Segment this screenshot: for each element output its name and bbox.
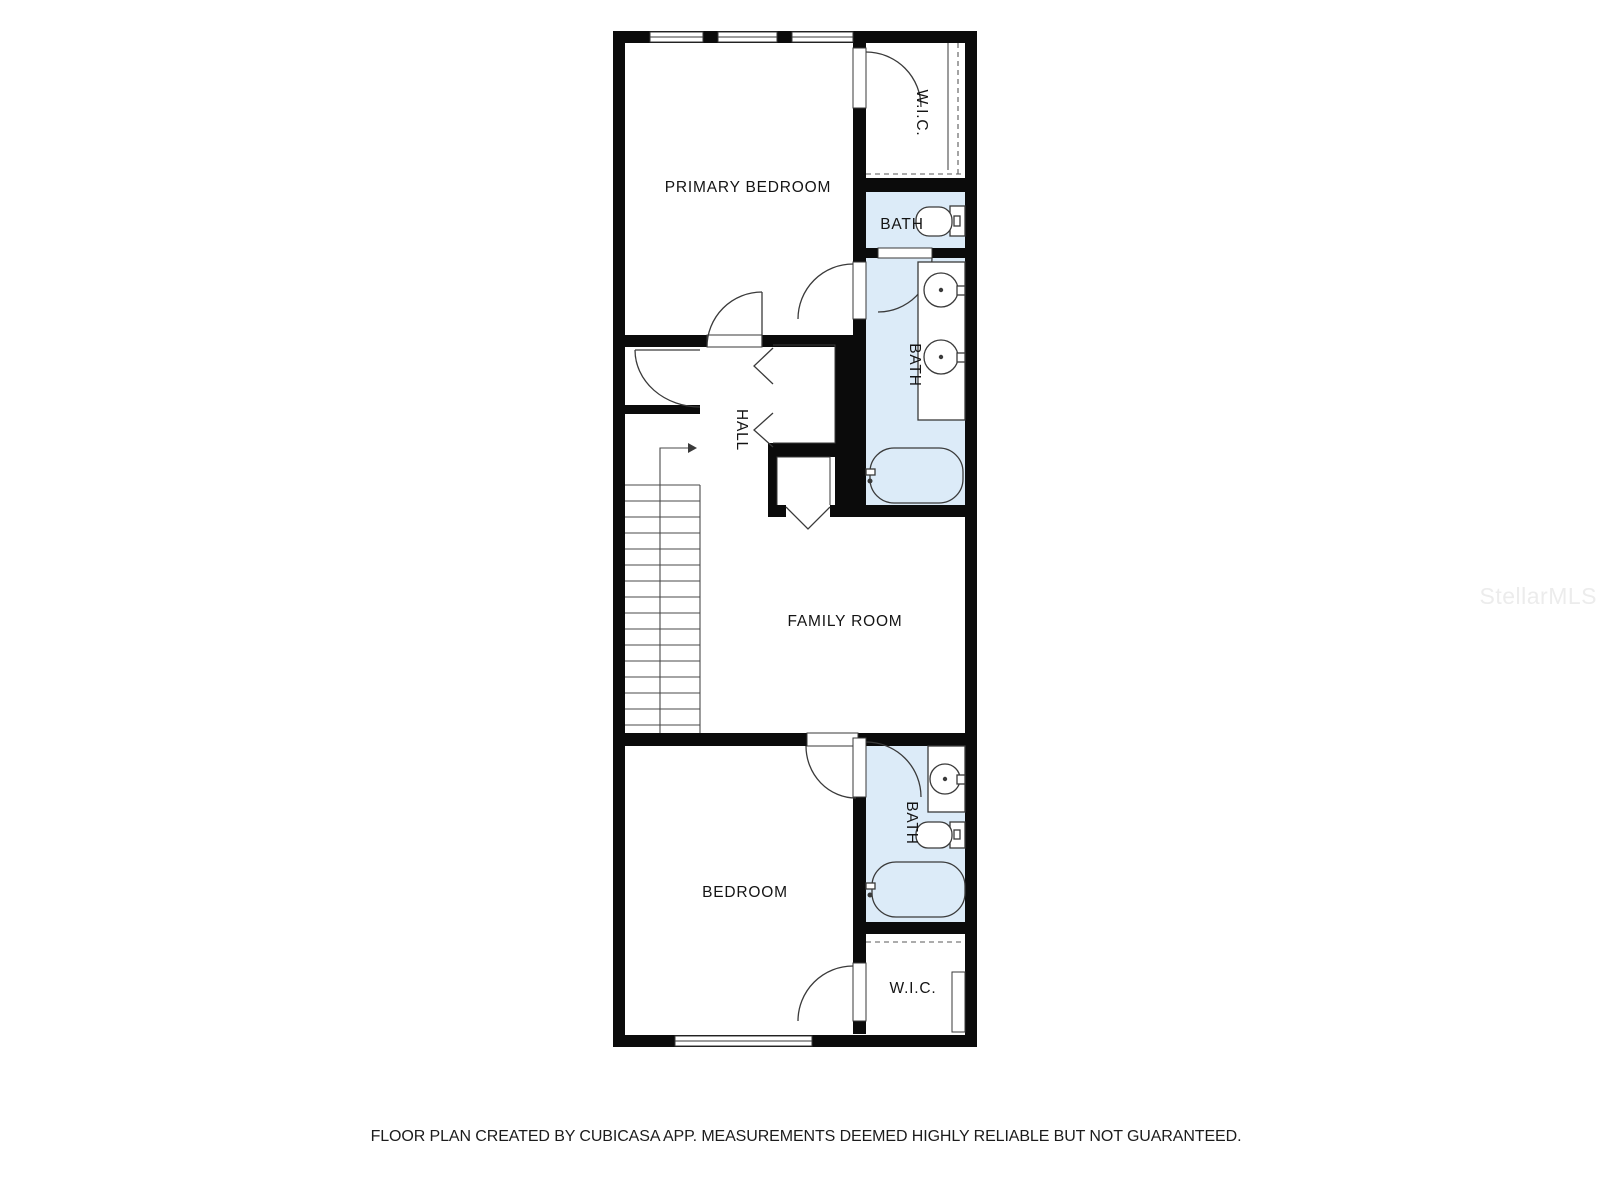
staircase xyxy=(625,443,700,733)
stair-arrow-head-icon xyxy=(688,443,697,453)
hall-closets xyxy=(754,345,835,529)
closet1-outline xyxy=(773,345,835,443)
wall-bath-wic-bottom xyxy=(853,922,965,934)
primary-bath-label: BATH xyxy=(906,343,923,386)
toilet-room-label: BATH xyxy=(880,216,923,233)
floor-plan-svg: PRIMARY BEDROOM W.I.C. BATH BATH HALL FA… xyxy=(0,0,1600,1200)
window-top-1 xyxy=(650,32,703,42)
primary-bath-door-leaf xyxy=(853,262,866,319)
wic-top-label: W.I.C. xyxy=(913,90,930,137)
wall-toilet-room-bath-right xyxy=(932,248,965,258)
wall-closet-right-chase xyxy=(835,343,866,505)
wall-family-top-right xyxy=(830,505,965,517)
wall-closet-divider xyxy=(768,443,866,457)
wall-family-top-left-stub xyxy=(768,505,786,517)
closet1-chevron-door-2 xyxy=(754,413,773,447)
wic-bottom-label: W.I.C. xyxy=(890,980,937,997)
bedroom-door-leaf xyxy=(807,733,858,746)
wic-bottom-shelf-unit xyxy=(952,972,965,1032)
wall-primary-bedroom-bottom-left xyxy=(613,335,707,347)
wall-toilet-room-bath-left xyxy=(853,248,878,258)
primary-bedroom-label: PRIMARY BEDROOM xyxy=(665,179,831,196)
toilet-icon xyxy=(916,822,965,848)
stair-treads xyxy=(625,485,700,725)
hall-label: HALL xyxy=(733,409,750,451)
wic-bottom-door-leaf xyxy=(853,963,866,1021)
closet2-chevron-door xyxy=(786,507,830,529)
wall-closet2-left xyxy=(768,457,777,507)
window-top-2 xyxy=(718,32,777,42)
bedroom-door-arc xyxy=(806,746,856,798)
wall-wic-toilet-room xyxy=(853,178,965,192)
wall-family-bath-right xyxy=(856,733,965,746)
stellar-mls-watermark: StellarMLS xyxy=(1480,583,1597,609)
family-room-label: FAMILY ROOM xyxy=(787,613,902,630)
exterior-wall-right xyxy=(965,31,977,1047)
window-top-3 xyxy=(792,32,853,42)
lower-bath-door-leaf xyxy=(853,738,866,797)
primary-bedroom-door-leaf xyxy=(707,335,762,347)
wall-family-bedroom-left xyxy=(613,733,807,746)
landing-door-arc xyxy=(635,350,700,407)
lower-bath-label: BATH xyxy=(903,801,920,844)
wic-bottom-door-arc xyxy=(798,966,853,1021)
closet1-chevron-door-1 xyxy=(754,348,773,384)
exterior-wall-left xyxy=(613,31,625,1047)
footer-disclaimer: FLOOR PLAN CREATED BY CUBICASA APP. MEAS… xyxy=(371,1128,1242,1145)
floor-plan-page: PRIMARY BEDROOM W.I.C. BATH BATH HALL FA… xyxy=(0,0,1600,1200)
primary-bath-door-arc xyxy=(798,264,853,319)
stair-direction-arrow xyxy=(660,448,688,485)
bedroom-label: BEDROOM xyxy=(702,884,788,901)
closet2-outline xyxy=(777,457,830,505)
wic-top-door-leaf xyxy=(853,48,866,108)
window-bottom xyxy=(675,1036,812,1046)
wic-top-door-arc xyxy=(866,52,921,107)
toilet-room-door-leaf xyxy=(878,248,932,258)
